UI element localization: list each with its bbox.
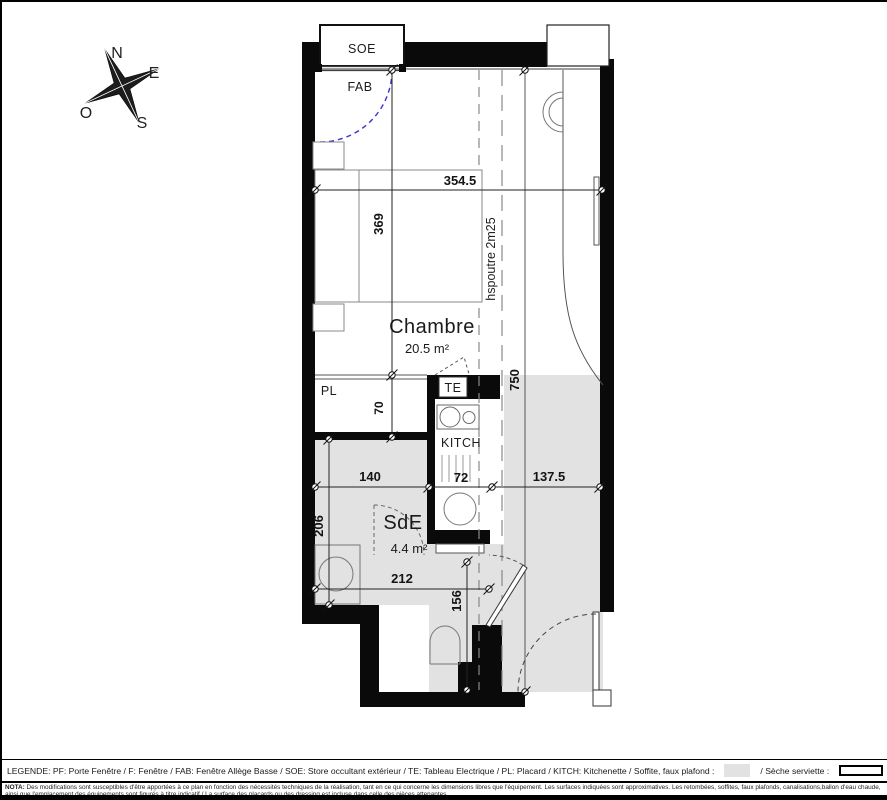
room-sde-area: 4.4 m² [391, 541, 429, 556]
dim-wc-depth: 156 [449, 590, 464, 612]
chambre-door-indication [435, 357, 469, 375]
pl-label: PL [321, 384, 337, 398]
facade-notch [547, 25, 609, 66]
kitchen-soffit-edge [436, 544, 484, 553]
legend-seche-label: / Sèche serviette : [760, 766, 829, 776]
room-sde-name: SdE [383, 512, 422, 534]
bottom-border-bar [2, 795, 887, 800]
dim-total-depth: 750 [507, 369, 522, 391]
te-label: TE [445, 381, 462, 395]
kitch-label: KITCH [441, 436, 481, 450]
entry-door-leaf [593, 612, 599, 690]
compass-north: N [111, 45, 123, 62]
soffit-swatch [724, 764, 750, 777]
soe-label: SOE [348, 42, 376, 56]
room-chambre-name: Chambre [389, 316, 475, 338]
compass-east: E [149, 65, 160, 82]
entry-threshold [593, 690, 611, 706]
dim-lower-width: 212 [391, 571, 413, 586]
room-chambre-area: 20.5 m² [405, 341, 450, 356]
legend-bar: LEGENDE: PF: Porte Fenêtre / F: Fenêtre … [2, 759, 887, 781]
floorplan-drawing: 354.5 369 70 750 140 72 137.5 206 212 15… [2, 2, 887, 759]
nota-label: NOTA: [5, 784, 25, 791]
nota-line1: Des modifications sont susceptibles d'êt… [27, 784, 881, 791]
fab-label: FAB [347, 80, 372, 94]
water-heater [444, 493, 476, 525]
beam-height-note: hspoutre 2m25 [484, 217, 498, 300]
floorplan-page: 354.5 369 70 750 140 72 137.5 206 212 15… [0, 0, 887, 800]
nightstand [313, 304, 344, 331]
seche-serviette-symbol [839, 765, 883, 776]
compass-south: S [137, 115, 148, 132]
dim-sde-width: 140 [359, 469, 381, 484]
dim-sde-depth: 206 [311, 515, 326, 537]
dim-entry-width: 137.5 [533, 469, 566, 484]
dim-kitchen-width: 72 [454, 470, 468, 485]
legend-text: LEGENDE: PF: Porte Fenêtre / F: Fenêtre … [7, 766, 714, 776]
compass-west: O [80, 105, 92, 122]
dim-placard-depth: 70 [372, 401, 386, 415]
dim-chambre-depth: 369 [371, 213, 386, 235]
nightstand [313, 142, 344, 169]
bed [313, 142, 482, 331]
dim-chambre-width: 354.5 [444, 173, 477, 188]
compass-rose: N E S O [68, 32, 177, 141]
seche-serviette [594, 177, 599, 245]
sink-counter [437, 405, 479, 429]
